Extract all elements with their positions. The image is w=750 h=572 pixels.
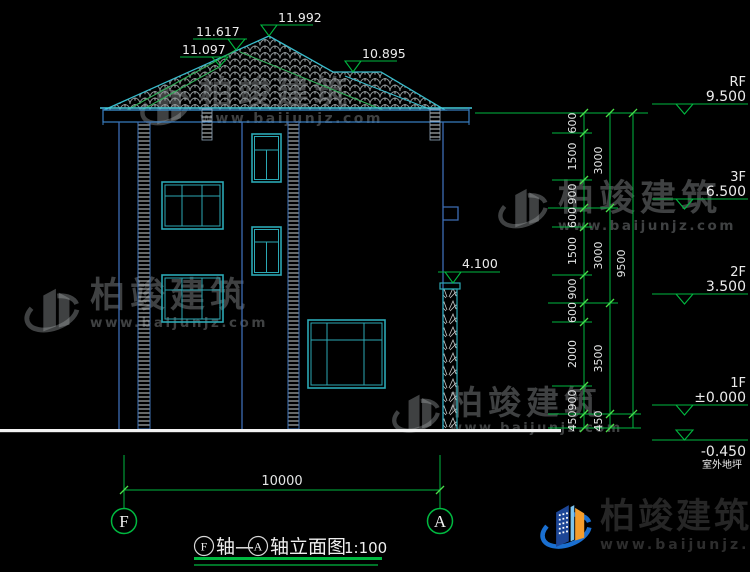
svg-text:2F: 2F [730, 265, 746, 280]
svg-text:450: 450 [566, 411, 579, 432]
svg-text:3000: 3000 [592, 147, 605, 175]
svg-text:3000: 3000 [592, 242, 605, 270]
wall-ledge [443, 207, 458, 220]
svg-text:RF: RF [729, 75, 746, 90]
svg-text:900: 900 [566, 390, 579, 411]
axis-bubbles: F A [112, 509, 453, 534]
footer-site: www.baijunjz.com [600, 537, 750, 553]
dimension-labels-col2: 3000 3000 3500 450 [592, 147, 605, 432]
width-dimension-value: 10000 [261, 474, 302, 489]
svg-text:A: A [434, 512, 447, 531]
eave-bracket [430, 109, 440, 140]
window-1f-large [308, 320, 385, 388]
window-2f-large [162, 275, 223, 322]
svg-text:1500: 1500 [566, 237, 579, 265]
svg-text:900: 900 [566, 279, 579, 300]
svg-text:轴立面图: 轴立面图 [270, 536, 346, 558]
svg-text:600: 600 [566, 113, 579, 134]
svg-text:3F: 3F [730, 170, 746, 185]
bottom-dimension: 10000 [120, 455, 444, 509]
footer-brand: 柏竣建筑 [600, 500, 750, 535]
svg-text:室外地坪: 室外地坪 [702, 458, 742, 471]
svg-text:F: F [119, 512, 128, 531]
svg-text:±0.000: ±0.000 [694, 390, 746, 406]
svg-text:F: F [201, 540, 208, 554]
svg-text:1F: 1F [730, 376, 746, 391]
dimension-total: 9500 [615, 250, 628, 278]
svg-text:1500: 1500 [566, 143, 579, 171]
drawing-title: F 轴— A 轴立面图 1:100 [194, 536, 387, 565]
window-3f-large [162, 182, 223, 229]
level-value-left-lower: 11.097 [182, 42, 226, 57]
brand-logo-footer: 柏竣建筑 www.baijunjz.com [538, 484, 750, 568]
drawing-scale: 1:100 [344, 539, 387, 557]
column-level-value: 4.100 [462, 256, 498, 271]
window-3f-small [252, 134, 281, 182]
ground-line [0, 429, 561, 432]
pilaster-middle [288, 122, 299, 429]
svg-text:9.500: 9.500 [706, 89, 746, 105]
svg-text:3.500: 3.500 [706, 279, 746, 295]
svg-text:A: A [254, 540, 263, 554]
svg-text:450: 450 [592, 411, 605, 432]
svg-text:2000: 2000 [566, 340, 579, 368]
stone-column [440, 283, 460, 431]
svg-text:600: 600 [566, 207, 579, 228]
brand-logo-icon [538, 484, 596, 568]
svg-text:6.500: 6.500 [706, 184, 746, 200]
level-value-roof-right: 10.895 [362, 46, 406, 61]
window-2f-small [252, 227, 281, 275]
title-underline [194, 557, 382, 560]
level-value-peak: 11.992 [278, 10, 322, 25]
eave-bracket [202, 109, 212, 140]
cad-elevation-canvas: 柏竣建筑 www.baijunjz.com 柏竣建筑 www.baijunjz.… [0, 0, 750, 572]
svg-text:900: 900 [566, 184, 579, 205]
svg-text:3500: 3500 [592, 345, 605, 373]
level-value-left-upper: 11.617 [196, 24, 240, 39]
windows [162, 134, 385, 388]
eave [100, 107, 472, 140]
pilaster-left [138, 122, 150, 429]
dimension-ticks [580, 109, 637, 432]
floor-levels: RF 9.500 3F 6.500 2F 3.500 1F ±0.000 -0.… [652, 75, 748, 471]
svg-text:-0.450: -0.450 [701, 444, 746, 460]
column-level-marker [438, 272, 500, 283]
svg-text:600: 600 [566, 302, 579, 323]
dimension-labels-col1: 600 1500 900 600 1500 900 600 2000 900 4… [566, 113, 579, 432]
